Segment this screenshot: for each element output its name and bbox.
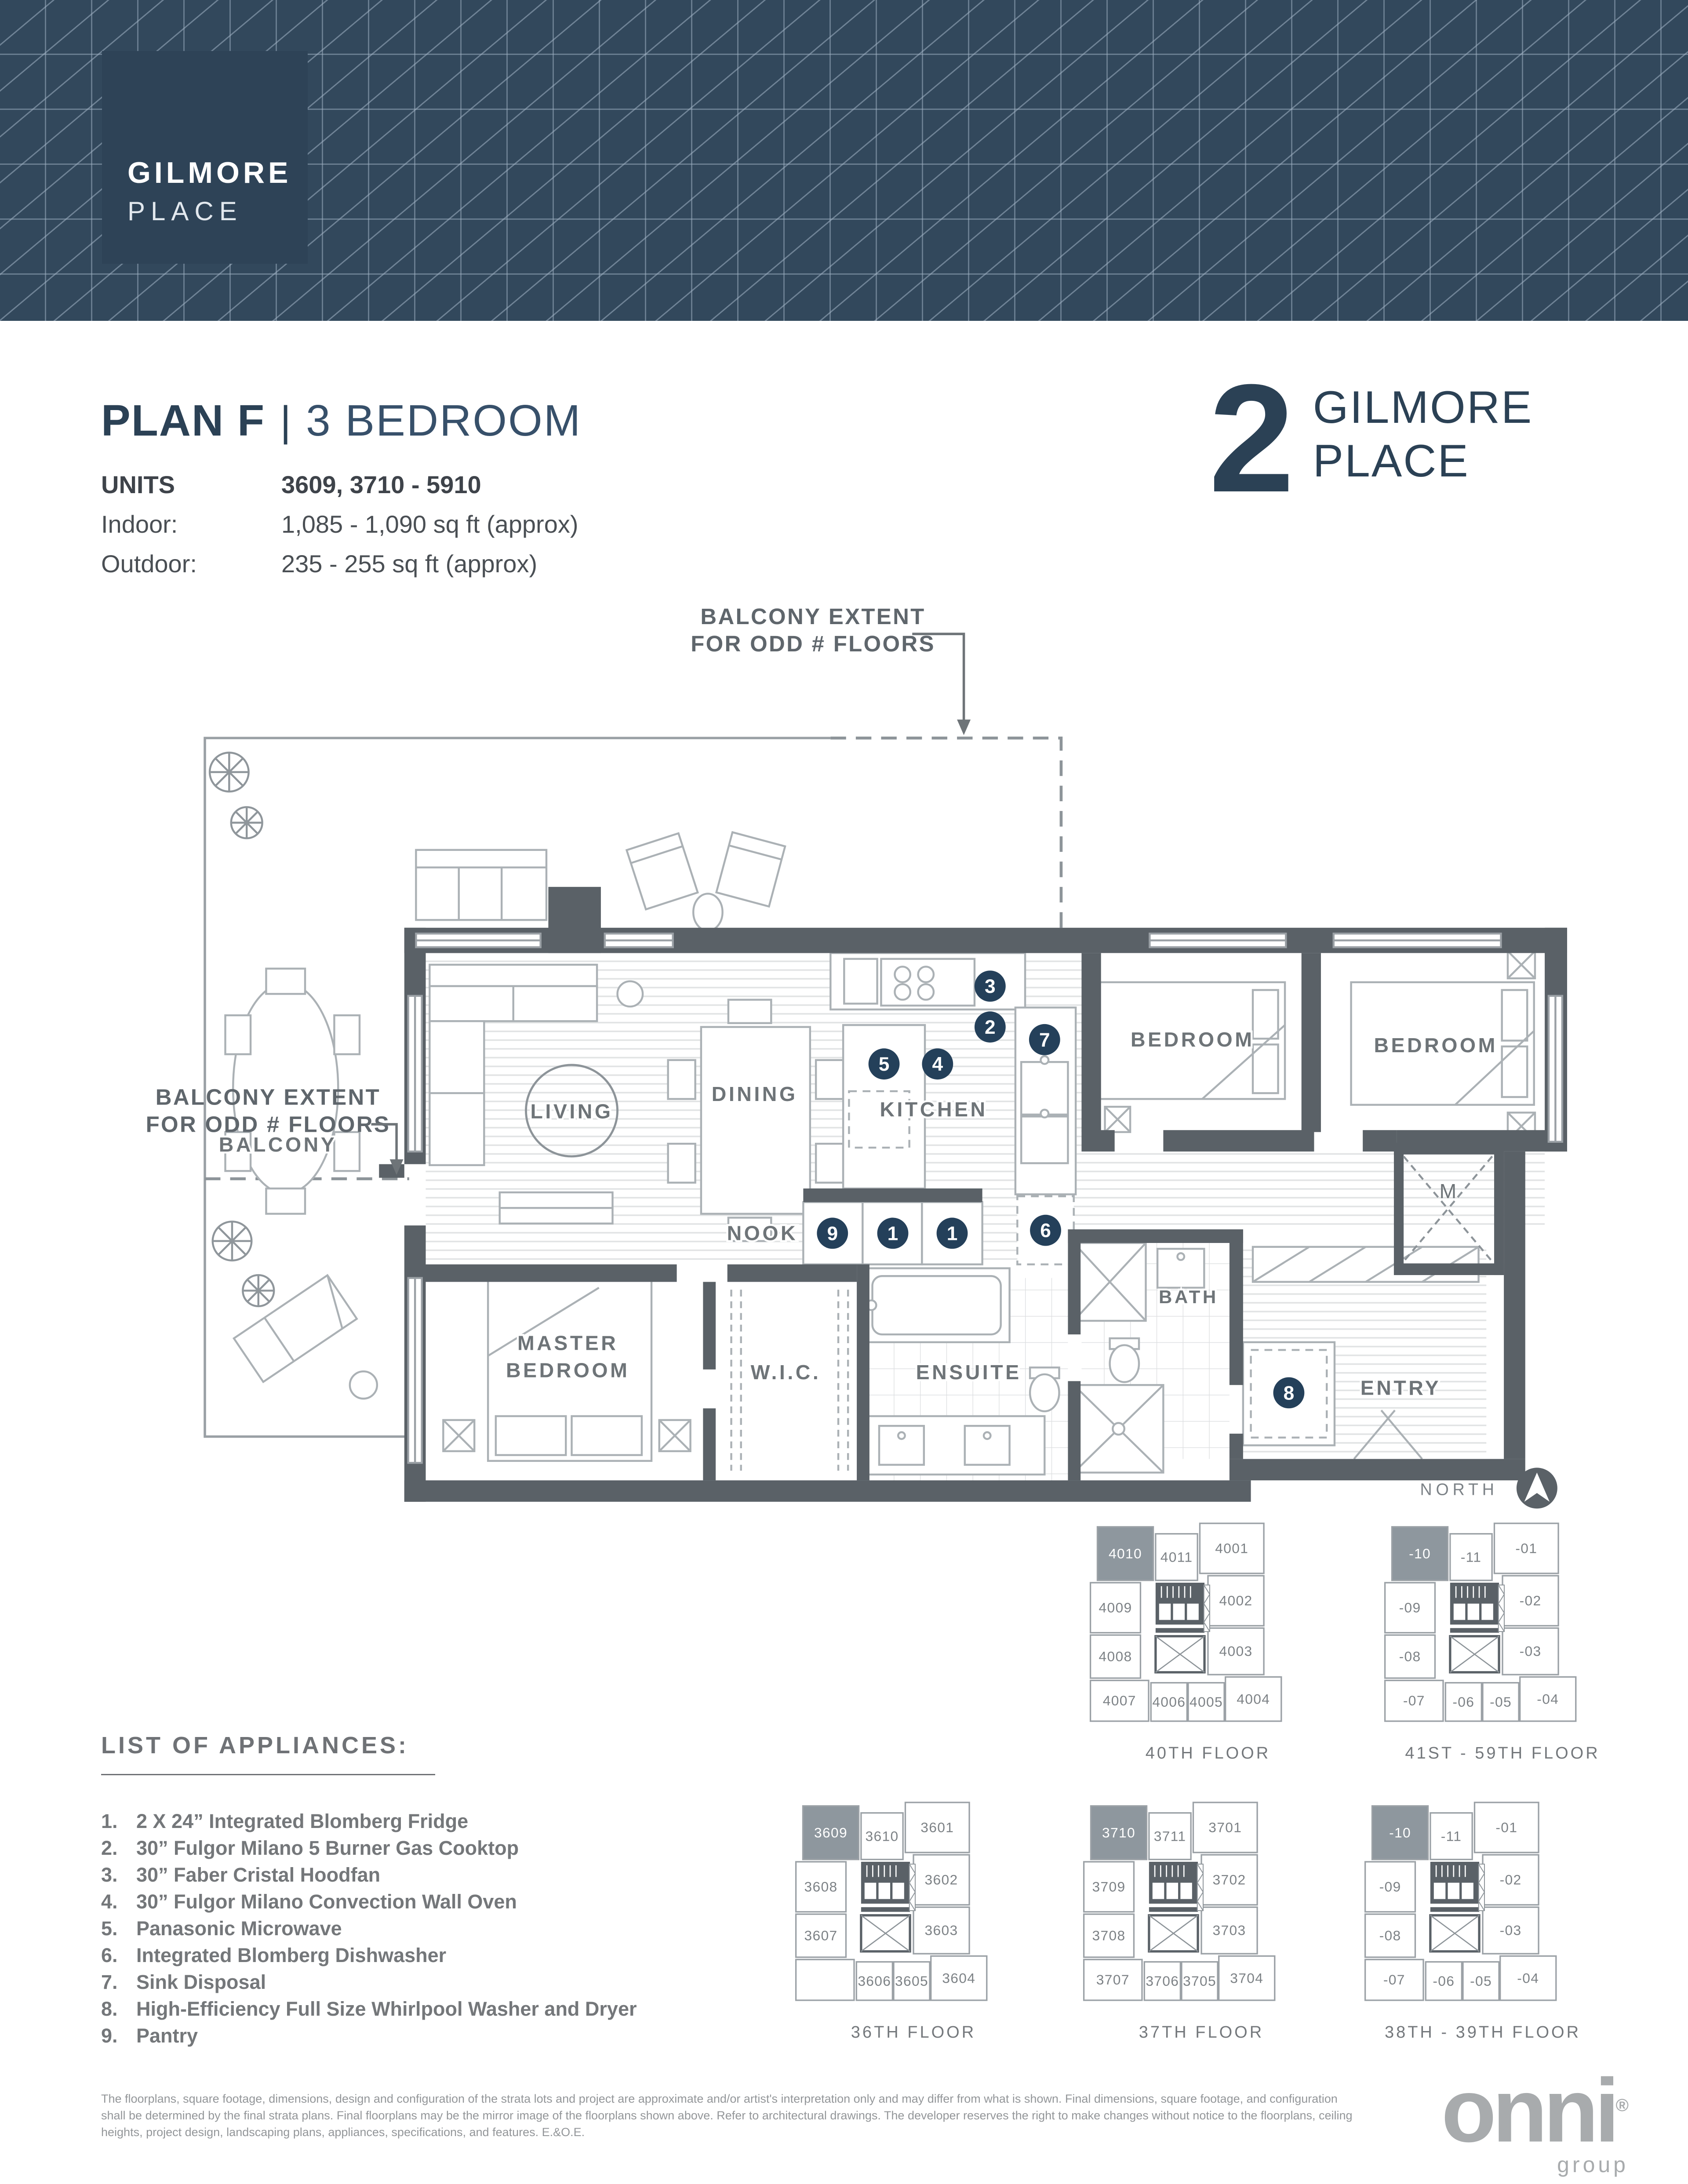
svg-text:3607: 3607 [804, 1928, 838, 1944]
keyplan-unit: 3703 [1201, 1907, 1257, 1954]
page-title: PLAN F | 3 BEDROOM [101, 396, 582, 446]
appliance-marker-disposal: 7 [1029, 1024, 1060, 1055]
svg-text:1: 1 [947, 1223, 958, 1244]
svg-text:3711: 3711 [1154, 1828, 1186, 1844]
keyplan-core [1149, 1862, 1203, 1951]
keyplan-svg: 3710371137013709370237083703370737063705… [1079, 1795, 1324, 2005]
keyplan-title: 38TH - 39TH FLOOR [1361, 2023, 1605, 2042]
keyplan-unit [796, 1959, 854, 2000]
svg-text:3706: 3706 [1146, 1973, 1179, 1989]
svg-text:6: 6 [1040, 1220, 1051, 1242]
keyplan-unit: 3604 [931, 1956, 987, 2000]
svg-text:9: 9 [827, 1223, 838, 1244]
appliance-marker-microwave: 5 [869, 1048, 900, 1079]
logo-line2: PLACE [127, 196, 243, 226]
indoor-label: Indoor: [101, 505, 281, 544]
keyplan-unit: -09 [1385, 1583, 1435, 1633]
keyplan-unit: 3707 [1084, 1959, 1142, 2000]
keyplan-unit: -03 [1483, 1907, 1539, 1954]
keyplan-unit: -06 [1445, 1683, 1481, 1721]
svg-text:-05: -05 [1470, 1973, 1492, 1989]
svg-text:-08: -08 [1399, 1649, 1421, 1664]
appliance-marker-pantry: 9 [817, 1217, 848, 1249]
appliance-marker-cooktop: 2 [975, 1011, 1006, 1043]
svg-text:3608: 3608 [804, 1879, 838, 1894]
svg-text:4009: 4009 [1099, 1599, 1132, 1615]
keyplan-unit: 3607 [796, 1914, 846, 1957]
svg-text:5: 5 [879, 1054, 890, 1075]
keyplan-unit: -03 [1502, 1628, 1558, 1675]
svg-text:-11: -11 [1441, 1828, 1462, 1844]
keyplan-unit: -10 [1392, 1527, 1448, 1581]
disclaimer-text: The floorplans, square footage, dimensio… [101, 2090, 1363, 2140]
unit-stats: UNITS 3609, 3710 - 5910 Indoor: 1,085 - … [101, 465, 578, 584]
room-label-bedroom2: BEDROOM [1374, 1034, 1497, 1057]
svg-text:3602: 3602 [925, 1872, 958, 1888]
room-label-entry: ENTRY [1361, 1376, 1441, 1399]
keyplan-unit: 4005 [1188, 1683, 1224, 1721]
appliance-item: 8.High-Efficiency Full Size Whirlpool Wa… [101, 1995, 760, 2022]
appliance-item: 9.Pantry [101, 2022, 760, 2049]
keyplan-unit: -11 [1430, 1813, 1472, 1860]
svg-text:-02: -02 [1520, 1593, 1542, 1609]
onni-group-logo: onni® group [1413, 2061, 1629, 2177]
brochure-page: GILMORE PLACE PLAN F | 3 BEDROOM UNITS 3… [0, 0, 1688, 2184]
svg-text:-04: -04 [1537, 1691, 1559, 1707]
svg-text:-06: -06 [1452, 1694, 1474, 1710]
floorplan: BALCONY EXTENT FOR ODD # FLOORS BALCONY … [132, 607, 1626, 1552]
keyplan-unit: 4002 [1208, 1576, 1264, 1626]
keyplan-unit: 4006 [1151, 1683, 1187, 1721]
keyplan-unit: 4010 [1097, 1527, 1153, 1581]
keyplan: -10-11-01-09-02-08-03-07-06-05-04 41ST -… [1380, 1516, 1625, 1763]
keyplan-unit: -02 [1483, 1855, 1539, 1905]
appliance-item: 5.Panasonic Microwave [101, 1915, 760, 1942]
svg-text:3604: 3604 [942, 1970, 975, 1986]
svg-text:3603: 3603 [925, 1922, 958, 1938]
keyplan-title: 40TH FLOOR [1086, 1744, 1330, 1763]
keyplan-svg: -10-11-01-09-02-08-03-07-06-05-04 [1361, 1795, 1605, 2005]
svg-text:3610: 3610 [866, 1828, 899, 1844]
room-label-nook: NOOK [727, 1221, 798, 1244]
svg-text:4: 4 [932, 1054, 943, 1075]
svg-text:4005: 4005 [1190, 1694, 1223, 1710]
room-label-kitchen: KITCHEN [880, 1098, 987, 1121]
keyplan-unit: -04 [1520, 1677, 1576, 1721]
svg-text:-10: -10 [1389, 1824, 1411, 1840]
svg-text:4008: 4008 [1099, 1649, 1132, 1664]
keyplan-unit: -07 [1365, 1959, 1423, 2000]
svg-text:-11: -11 [1461, 1549, 1482, 1565]
svg-text:-03: -03 [1500, 1922, 1522, 1938]
svg-text:NORTH: NORTH [1420, 1480, 1498, 1498]
svg-text:-09: -09 [1399, 1599, 1421, 1615]
keyplan-unit: 3602 [913, 1855, 969, 1905]
units-label: UNITS [101, 465, 281, 505]
svg-text:BALCONY EXTENT: BALCONY EXTENT [700, 607, 925, 629]
svg-text:-10: -10 [1409, 1545, 1431, 1561]
svg-text:-01: -01 [1495, 1819, 1517, 1835]
keyplan-unit: -04 [1500, 1956, 1556, 2000]
indoor-row: Indoor: 1,085 - 1,090 sq ft (approx) [101, 505, 578, 544]
outdoor-sofa [416, 850, 546, 920]
svg-text:-03: -03 [1520, 1643, 1542, 1659]
svg-text:3702: 3702 [1213, 1872, 1246, 1888]
svg-text:3710: 3710 [1102, 1824, 1135, 1840]
svg-text:3609: 3609 [814, 1824, 848, 1840]
keyplan-svg: 3609361036013608360236073603360636053604 [791, 1795, 1036, 2005]
svg-text:4004: 4004 [1237, 1691, 1270, 1707]
keyplan-svg: -10-11-01-09-02-08-03-07-06-05-04 [1380, 1516, 1625, 1726]
keyplan-unit: 4003 [1208, 1628, 1264, 1675]
keyplan-unit: 4011 [1156, 1534, 1197, 1581]
svg-text:2: 2 [985, 1017, 996, 1038]
keyplan-unit: 3706 [1144, 1962, 1180, 2000]
logo-line1: GILMORE [127, 156, 291, 190]
keyplan-unit: 3708 [1084, 1914, 1134, 1957]
indoor-value: 1,085 - 1,090 sq ft (approx) [281, 505, 578, 544]
svg-text:4003: 4003 [1219, 1643, 1253, 1659]
svg-text:3708: 3708 [1092, 1928, 1126, 1944]
svg-text:3606: 3606 [858, 1973, 891, 1989]
svg-text:3705: 3705 [1183, 1973, 1216, 1989]
appliance-marker-fridge_a: 1 [877, 1217, 909, 1249]
keyplan-unit: 3704 [1219, 1956, 1275, 2000]
keyplan-unit: 3603 [913, 1907, 969, 1954]
appliance-item: 6.Integrated Blomberg Dishwasher [101, 1942, 760, 1969]
keyplan-unit: -09 [1365, 1862, 1415, 1912]
svg-text:-07: -07 [1403, 1693, 1425, 1708]
svg-text:3605: 3605 [895, 1973, 928, 1989]
room-label-balcony: BALCONY [219, 1133, 337, 1156]
keyplan-unit: 3711 [1149, 1813, 1191, 1860]
svg-text:-05: -05 [1490, 1694, 1512, 1710]
keyplan-core [1156, 1583, 1210, 1672]
toilet [1110, 1345, 1139, 1382]
plan-name: PLAN F [101, 396, 265, 446]
balcony-extent-note-top: BALCONY EXTENT FOR ODD # FLOORS [691, 607, 971, 735]
bedroom1-furniture [1100, 982, 1285, 1132]
keyplan: 3710371137013709370237083703370737063705… [1079, 1795, 1324, 2042]
svg-text:1: 1 [888, 1223, 899, 1244]
svg-text:7: 7 [1039, 1029, 1050, 1051]
keyplan-unit: 4009 [1091, 1583, 1141, 1633]
keyplan-unit: 4007 [1091, 1680, 1149, 1721]
appliance-item: 3.30” Faber Cristal Hoodfan [101, 1861, 760, 1888]
side-table [350, 1371, 377, 1399]
keyplan-unit: -11 [1450, 1534, 1492, 1581]
keyplan-unit: -06 [1426, 1962, 1462, 2000]
outdoor-label: Outdoor: [101, 544, 281, 584]
appliance-item: 4.30” Fulgor Milano Convection Wall Oven [101, 1888, 760, 1915]
keyplan-core [1430, 1862, 1484, 1951]
units-value: 3609, 3710 - 5910 [281, 465, 481, 505]
keyplan-unit: -02 [1502, 1576, 1558, 1626]
appliance-heading: LIST OF APPLIANCES: [101, 1732, 435, 1775]
svg-text:4007: 4007 [1103, 1693, 1136, 1708]
keyplan-unit: -10 [1372, 1806, 1428, 1860]
toilet [1030, 1374, 1059, 1411]
svg-text:-04: -04 [1517, 1970, 1539, 1986]
keyplan-unit: -08 [1365, 1914, 1415, 1957]
plan-type: 3 BEDROOM [306, 396, 582, 446]
svg-text:8: 8 [1284, 1382, 1295, 1404]
keyplan: 4010401140014009400240084003400740064005… [1086, 1516, 1330, 1763]
keyplan-unit: 4008 [1091, 1635, 1141, 1678]
header-banner: GILMORE PLACE [0, 0, 1688, 321]
room-label-living: LIVING [530, 1100, 613, 1123]
svg-text:-01: -01 [1515, 1540, 1537, 1556]
svg-text:3704: 3704 [1230, 1970, 1263, 1986]
building-number: 2 [1209, 373, 1295, 505]
appliance-marker-dishwasher: 6 [1030, 1215, 1061, 1246]
brand-line1: GILMORE [1313, 381, 1533, 434]
keyplan-title: 41ST - 59TH FLOOR [1380, 1744, 1625, 1763]
registered-mark: ® [1616, 2096, 1629, 2115]
keyplan-unit: 3610 [861, 1813, 903, 1860]
keyplan-unit: -01 [1494, 1523, 1558, 1573]
svg-text:-07: -07 [1383, 1972, 1405, 1988]
keyplan-unit: 4004 [1226, 1677, 1281, 1721]
keyplan-unit: 3710 [1091, 1806, 1146, 1860]
room-label-master2: BEDROOM [506, 1359, 629, 1381]
room-label-ensuite: ENSUITE [916, 1361, 1022, 1384]
keyplan-core [861, 1862, 915, 1951]
keyplan-unit: -07 [1385, 1680, 1443, 1721]
appliance-marker-oven: 4 [922, 1048, 953, 1079]
svg-text:3601: 3601 [920, 1819, 954, 1835]
keyplan-unit: 3709 [1084, 1862, 1134, 1912]
svg-text:4006: 4006 [1152, 1694, 1186, 1710]
keyplan-title: 37TH FLOOR [1079, 2023, 1324, 2042]
keyplan-unit: -05 [1463, 1962, 1499, 2000]
appliance-item: 1.2 X 24” Integrated Blomberg Fridge [101, 1808, 760, 1835]
keyplan-unit: 3605 [894, 1962, 930, 2000]
keyplan-core [1450, 1583, 1504, 1672]
keyplan-unit: 3601 [905, 1802, 969, 1853]
svg-text:3703: 3703 [1213, 1922, 1246, 1938]
room-label-dining: DINING [712, 1083, 798, 1105]
appliance-section: LIST OF APPLIANCES: 1.2 X 24” Integrated… [101, 1732, 760, 2049]
outdoor-value: 235 - 255 sq ft (approx) [281, 544, 537, 584]
svg-text:3709: 3709 [1092, 1879, 1126, 1894]
appliance-item: 2.30” Fulgor Milano 5 Burner Gas Cooktop [101, 1835, 760, 1861]
svg-text:3701: 3701 [1208, 1819, 1242, 1835]
keyplan-unit: 3606 [856, 1962, 892, 2000]
room-label-bath: BATH [1159, 1286, 1219, 1307]
room-label-m-closet: M [1439, 1180, 1457, 1203]
keyplan-unit: 3702 [1201, 1855, 1257, 1905]
keyplan-unit: 4001 [1200, 1523, 1264, 1573]
onni-wordmark: onni® [1413, 2061, 1629, 2155]
keyplan-unit: -08 [1385, 1635, 1435, 1678]
room-label-master1: MASTER [517, 1331, 618, 1354]
svg-text:4001: 4001 [1215, 1540, 1248, 1556]
floorplan-svg: BALCONY EXTENT FOR ODD # FLOORS BALCONY … [132, 607, 1626, 1552]
svg-text:-08: -08 [1379, 1928, 1401, 1944]
keyplan-unit: 3705 [1182, 1962, 1218, 2000]
units-row: UNITS 3609, 3710 - 5910 [101, 465, 578, 505]
keyplan-unit: 3609 [803, 1806, 859, 1860]
keyplan-unit: -01 [1474, 1802, 1539, 1853]
keyplan-title: 36TH FLOOR [791, 2023, 1036, 2042]
room-label-bedroom1: BEDROOM [1131, 1028, 1254, 1051]
title-separator: | [280, 397, 291, 446]
building-brand: 2 GILMORE PLACE [1209, 373, 1533, 505]
appliance-marker-hoodfan: 3 [975, 970, 1006, 1002]
svg-text:-06: -06 [1433, 1973, 1455, 1989]
kitchen-sink [1021, 1062, 1068, 1115]
outdoor-row: Outdoor: 235 - 255 sq ft (approx) [101, 544, 578, 584]
room-label-wic: W.I.C. [751, 1361, 821, 1384]
keyplan-svg: 4010401140014009400240084003400740064005… [1086, 1516, 1330, 1726]
svg-text:4002: 4002 [1219, 1593, 1253, 1609]
brand-line2: PLACE [1313, 434, 1533, 488]
keyplan-unit: -05 [1483, 1683, 1519, 1721]
appliance-item: 7.Sink Disposal [101, 1969, 760, 1995]
keyplan-unit: 3608 [796, 1862, 846, 1912]
gilmore-place-logo: GILMORE PLACE [102, 51, 308, 264]
svg-text:3: 3 [985, 976, 996, 997]
keyplan: -10-11-01-09-02-08-03-07-06-05-04 38TH -… [1361, 1795, 1605, 2042]
keyplan-unit: 3701 [1193, 1802, 1257, 1853]
svg-text:FOR ODD # FLOORS: FOR ODD # FLOORS [691, 631, 935, 656]
svg-text:3707: 3707 [1096, 1972, 1130, 1988]
appliance-marker-laundry: 8 [1273, 1377, 1304, 1408]
keyplan: 3609361036013608360236073603360636053604… [791, 1795, 1036, 2042]
svg-text:4010: 4010 [1109, 1545, 1142, 1561]
svg-text:4011: 4011 [1160, 1549, 1193, 1565]
svg-text:-02: -02 [1500, 1872, 1522, 1888]
svg-text:BALCONY EXTENT: BALCONY EXTENT [156, 1085, 381, 1110]
appliance-list: 1.2 X 24” Integrated Blomberg Fridge2.30… [101, 1808, 760, 2049]
svg-text:-09: -09 [1379, 1879, 1401, 1894]
appliance-marker-fridge_b: 1 [937, 1217, 968, 1249]
